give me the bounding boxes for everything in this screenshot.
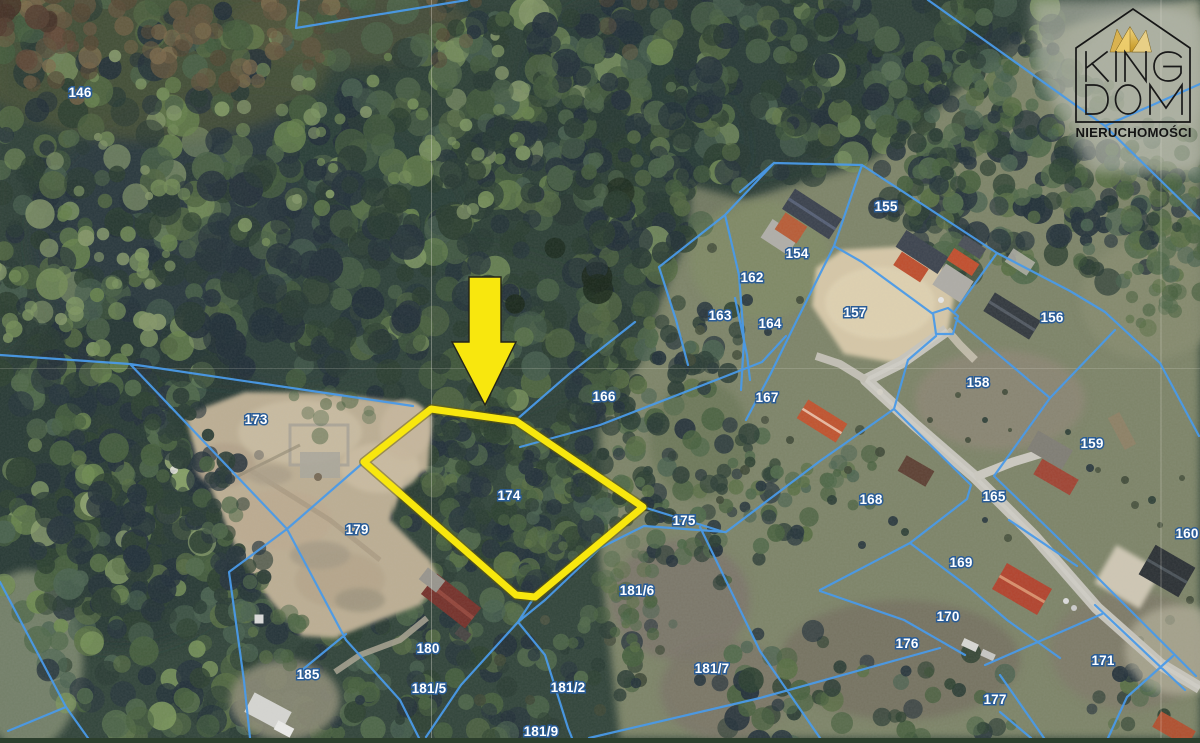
svg-text:179: 179 [345, 522, 368, 537]
svg-text:181/7: 181/7 [695, 661, 730, 676]
svg-text:173: 173 [244, 412, 267, 427]
svg-text:181/6: 181/6 [620, 583, 655, 598]
svg-text:170: 170 [936, 609, 959, 624]
svg-text:163: 163 [708, 308, 731, 323]
svg-text:174: 174 [497, 488, 520, 503]
svg-text:164: 164 [758, 316, 781, 331]
svg-text:171: 171 [1091, 653, 1114, 668]
svg-text:180: 180 [416, 641, 439, 656]
svg-text:160: 160 [1175, 526, 1198, 541]
svg-text:167: 167 [755, 390, 778, 405]
svg-text:166: 166 [592, 389, 615, 404]
svg-text:156: 156 [1040, 310, 1063, 325]
svg-text:162: 162 [740, 270, 763, 285]
svg-text:177: 177 [983, 692, 1006, 707]
svg-text:181/2: 181/2 [551, 680, 586, 695]
svg-text:159: 159 [1080, 436, 1103, 451]
svg-text:168: 168 [859, 492, 882, 507]
svg-text:176: 176 [895, 636, 918, 651]
svg-text:157: 157 [843, 305, 866, 320]
svg-text:158: 158 [966, 375, 989, 390]
svg-text:154: 154 [785, 246, 808, 261]
svg-text:175: 175 [672, 513, 695, 528]
svg-text:NIERUCHOMOŚCI: NIERUCHOMOŚCI [1076, 125, 1192, 140]
svg-text:146: 146 [68, 85, 91, 100]
svg-text:169: 169 [949, 555, 972, 570]
svg-text:165: 165 [982, 489, 1005, 504]
svg-text:181/9: 181/9 [524, 724, 559, 738]
svg-text:155: 155 [874, 199, 897, 214]
svg-text:185: 185 [296, 667, 319, 682]
svg-text:181/5: 181/5 [412, 681, 447, 696]
